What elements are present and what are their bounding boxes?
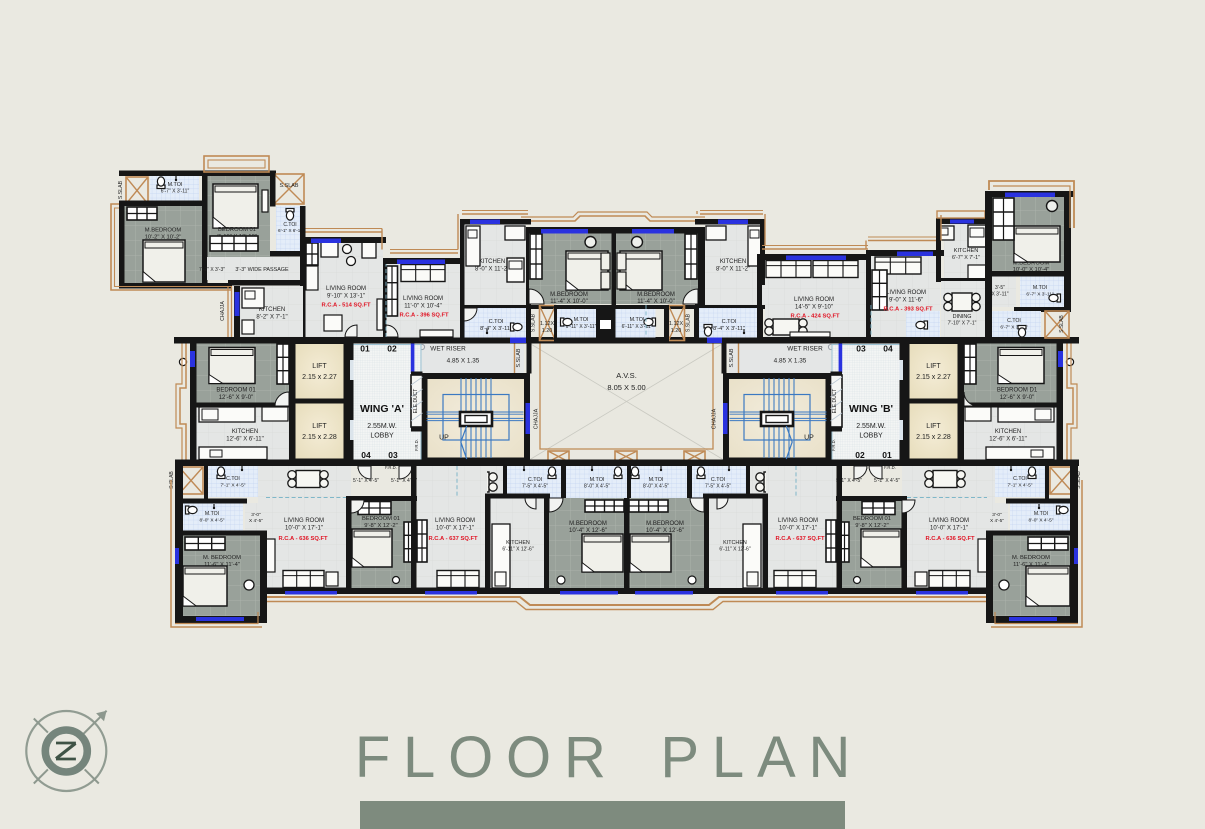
svg-text:8'-0" X 11'-2": 8'-0" X 11'-2"	[716, 267, 750, 273]
svg-text:6'-11" X 12'-6": 6'-11" X 12'-6"	[502, 547, 533, 553]
svg-text:LIFT: LIFT	[312, 423, 327, 430]
svg-text:01: 01	[360, 344, 370, 354]
svg-text:F.R.D.: F.R.D.	[414, 439, 419, 451]
svg-text:7'-5" X 4'-5": 7'-5" X 4'-5"	[522, 484, 548, 490]
svg-text:LIVING ROOM: LIVING ROOM	[778, 518, 818, 524]
svg-text:X 3'-11": X 3'-11"	[991, 292, 1008, 298]
svg-text:4.85 X 1.35: 4.85 X 1.35	[447, 358, 480, 365]
svg-text:A.V.S.: A.V.S.	[616, 371, 637, 380]
svg-text:LIVING ROOM: LIVING ROOM	[284, 518, 324, 524]
svg-text:KITCHEN: KITCHEN	[720, 259, 746, 265]
svg-text:11'-0" X 10'-4": 11'-0" X 10'-4"	[404, 304, 441, 310]
svg-text:8.05 X 5.00: 8.05 X 5.00	[607, 383, 645, 392]
svg-text:S.SLAB: S.SLAB	[531, 313, 537, 332]
svg-text:14'-5" X 9'-10": 14'-5" X 9'-10"	[795, 305, 833, 311]
svg-text:6'-11" X 12'-6": 6'-11" X 12'-6"	[719, 547, 750, 553]
svg-text:WET RISER: WET RISER	[787, 346, 823, 353]
svg-text:KITCHEN: KITCHEN	[232, 429, 258, 435]
svg-text:1.20: 1.20	[671, 328, 682, 334]
svg-text:10'-0" X 17'-1": 10'-0" X 17'-1"	[436, 526, 474, 532]
svg-text:8'-2" X 7'-1": 8'-2" X 7'-1"	[256, 315, 287, 321]
svg-text:BEDROOM D1: BEDROOM D1	[997, 388, 1038, 394]
svg-text:R.C.A - 393 SQ.FT: R.C.A - 393 SQ.FT	[883, 307, 933, 313]
svg-text:KITCHEN: KITCHEN	[954, 248, 979, 254]
svg-text:04: 04	[361, 450, 371, 460]
svg-text:1.12X: 1.12X	[669, 321, 683, 327]
svg-text:11'-4" X 10'-0": 11'-4" X 10'-0"	[550, 299, 587, 305]
svg-text:7'-1" X 4'-5": 7'-1" X 4'-5"	[1008, 483, 1033, 489]
svg-text:LIFT: LIFT	[312, 363, 327, 370]
svg-text:R.C.A - 637 SQ.FT: R.C.A - 637 SQ.FT	[775, 536, 825, 542]
svg-text:01: 01	[882, 450, 892, 460]
svg-text:S.SLAB: S.SLAB	[169, 471, 175, 489]
svg-text:9'-0" X 11'-6": 9'-0" X 11'-6"	[889, 298, 923, 304]
svg-text:02: 02	[855, 450, 865, 460]
svg-text:C.TOI: C.TOI	[722, 319, 737, 325]
svg-text:LIVING ROOM: LIVING ROOM	[403, 296, 443, 302]
svg-text:M.TOI: M.TOI	[1034, 511, 1048, 517]
svg-text:WING 'A': WING 'A'	[360, 403, 404, 415]
svg-text:04: 04	[883, 344, 893, 354]
svg-text:6'-7" X 7'-1": 6'-7" X 7'-1"	[952, 255, 980, 261]
svg-text:ELE.DUCT: ELE.DUCT	[413, 389, 419, 414]
svg-text:LOBBY: LOBBY	[859, 433, 883, 440]
svg-text:LIVING ROOM: LIVING ROOM	[794, 297, 834, 303]
svg-text:LOBBY: LOBBY	[370, 433, 394, 440]
svg-text:LIVING ROOM: LIVING ROOM	[929, 518, 969, 524]
svg-text:M.TOI: M.TOI	[574, 317, 589, 323]
svg-text:BEDROOM 01: BEDROOM 01	[218, 227, 256, 233]
svg-text:1.12X: 1.12X	[540, 321, 554, 327]
svg-text:12'-6" X 9'-0": 12'-6" X 9'-0"	[219, 395, 254, 401]
svg-text:8'-0" X 11'-2": 8'-0" X 11'-2"	[475, 267, 509, 273]
svg-text:8'-0" X 4'-5": 8'-0" X 4'-5"	[1029, 518, 1054, 524]
svg-text:M.BEDROOM: M.BEDROOM	[637, 292, 675, 298]
svg-text:M.TOI: M.TOI	[168, 182, 183, 188]
svg-text:X 4'-5": X 4'-5"	[990, 518, 1004, 524]
svg-text:3'-3" WIDE PASSAGE: 3'-3" WIDE PASSAGE	[235, 267, 289, 273]
svg-text:12'-6" X 6'-11": 12'-6" X 6'-11"	[226, 437, 263, 443]
svg-text:2.55M.W.: 2.55M.W.	[856, 423, 886, 430]
svg-text:FLOOR PLAN: FLOOR PLAN	[355, 725, 863, 790]
svg-text:ELE.DUCT: ELE.DUCT	[832, 389, 838, 414]
svg-text:R.C.A - 396 SQ.FT: R.C.A - 396 SQ.FT	[399, 313, 449, 319]
svg-text:KITCHEN: KITCHEN	[479, 259, 505, 265]
svg-text:R.C.A - 637 SQ.FT: R.C.A - 637 SQ.FT	[428, 536, 478, 542]
svg-text:M.TOI: M.TOI	[630, 317, 645, 323]
svg-text:10'-0" X 17'-1": 10'-0" X 17'-1"	[285, 526, 323, 532]
svg-text:9'-10" X 13'-1": 9'-10" X 13'-1"	[327, 294, 365, 300]
svg-text:M.TOI: M.TOI	[649, 477, 664, 483]
svg-text:WET RISER: WET RISER	[430, 346, 466, 353]
svg-text:7'-10" X 7'-1": 7'-10" X 7'-1"	[948, 321, 977, 327]
svg-text:BEDROOM 01: BEDROOM 01	[362, 516, 400, 522]
svg-text:S.SLAB: S.SLAB	[280, 183, 299, 189]
svg-text:M.BEDROOM: M.BEDROOM	[569, 521, 607, 527]
svg-text:2.15 x 2.28: 2.15 x 2.28	[302, 434, 337, 441]
svg-text:S.SLAB: S.SLAB	[1059, 315, 1065, 333]
svg-text:S.SLAB: S.SLAB	[516, 348, 522, 367]
svg-text:R.C.A - 636 SQ.FT: R.C.A - 636 SQ.FT	[278, 536, 328, 542]
svg-text:M. BEDROOM: M. BEDROOM	[203, 555, 241, 561]
svg-text:8'-0" X 4'-5": 8'-0" X 4'-5"	[200, 518, 225, 524]
svg-text:M. BEDROOM: M. BEDROOM	[1012, 555, 1050, 561]
svg-text:F.R.D.: F.R.D.	[831, 439, 836, 451]
svg-text:10'-0" X 17'-1": 10'-0" X 17'-1"	[779, 526, 817, 532]
svg-text:9'-8" X 12'-2": 9'-8" X 12'-2"	[364, 523, 397, 529]
svg-text:8'-4" X 3'-11": 8'-4" X 3'-11"	[713, 326, 745, 332]
svg-text:S.SLAB: S.SLAB	[118, 180, 124, 199]
svg-text:9'-8" X 12'-2": 9'-8" X 12'-2"	[855, 523, 888, 529]
svg-text:M.BEDROOM: M.BEDROOM	[145, 228, 182, 234]
svg-text:3'-0": 3'-0"	[992, 512, 1002, 518]
svg-text:03: 03	[856, 344, 866, 354]
svg-text:4.85 X 1.35: 4.85 X 1.35	[774, 358, 807, 365]
svg-text:03: 03	[388, 450, 398, 460]
svg-text:LIVING ROOM: LIVING ROOM	[435, 518, 475, 524]
svg-text:M.TOI: M.TOI	[1033, 285, 1047, 291]
svg-text:3'-5": 3'-5"	[995, 285, 1005, 291]
svg-text:C.TOI: C.TOI	[1007, 318, 1021, 324]
svg-text:3'-0": 3'-0"	[251, 512, 261, 518]
svg-text:12'-6" X 6'-11": 12'-6" X 6'-11"	[989, 437, 1026, 443]
svg-text:5'-1" X 4'-5": 5'-1" X 4'-5"	[353, 478, 379, 484]
svg-text:CHAJJA: CHAJJA	[534, 408, 540, 429]
svg-text:DINING: DINING	[953, 314, 972, 320]
svg-text:KITCHEN: KITCHEN	[995, 429, 1021, 435]
svg-text:CHAJJA: CHAJJA	[712, 408, 718, 429]
svg-text:6'-7" X 3'-11": 6'-7" X 3'-11"	[161, 189, 190, 195]
svg-text:2.15 x 2.27: 2.15 x 2.27	[302, 374, 337, 381]
svg-text:7'-2" X 3'-3": 7'-2" X 3'-3"	[199, 267, 225, 273]
svg-text:10'-4" X 12'-6": 10'-4" X 12'-6"	[569, 528, 607, 534]
svg-text:11'-4" X 10'-0": 11'-4" X 10'-0"	[637, 299, 674, 305]
svg-text:8'-0" X 4'-5": 8'-0" X 4'-5"	[643, 484, 669, 490]
svg-text:R.C.A - 514 SQ.FT: R.C.A - 514 SQ.FT	[321, 303, 371, 309]
svg-text:KITCHEN: KITCHEN	[506, 540, 530, 546]
svg-text:X 4'-5": X 4'-5"	[249, 518, 263, 524]
svg-text:S.SLAB: S.SLAB	[686, 313, 692, 332]
svg-text:C.TOI: C.TOI	[489, 319, 504, 325]
svg-text:UP: UP	[439, 435, 449, 442]
svg-text:CHAJJA: CHAJJA	[220, 301, 226, 321]
svg-text:C.TOI: C.TOI	[711, 477, 725, 483]
svg-text:02: 02	[387, 344, 397, 354]
svg-text:LIVING ROOM: LIVING ROOM	[886, 290, 926, 296]
svg-text:2.15 x 2.28: 2.15 x 2.28	[916, 434, 951, 441]
svg-text:UP: UP	[804, 435, 814, 442]
svg-text:10'-0" X 17'-1": 10'-0" X 17'-1"	[930, 526, 968, 532]
svg-text:7'-5" X 4'-5": 7'-5" X 4'-5"	[705, 484, 731, 490]
svg-text:C.TOI: C.TOI	[1013, 476, 1027, 482]
svg-text:C.TOI: C.TOI	[226, 476, 240, 482]
svg-text:WING 'B': WING 'B'	[849, 403, 893, 415]
svg-text:2.55M.W.: 2.55M.W.	[367, 423, 397, 430]
svg-text:6'-1" X 6'-1": 6'-1" X 6'-1"	[278, 228, 302, 233]
svg-text:10'-4" X 12'-6": 10'-4" X 12'-6"	[646, 528, 684, 534]
svg-text:8'-4" X 3'-11": 8'-4" X 3'-11"	[480, 326, 512, 332]
svg-text:C.TOI: C.TOI	[528, 477, 542, 483]
svg-text:M.TOI: M.TOI	[590, 477, 605, 483]
svg-text:12'-6" X 9'-0": 12'-6" X 9'-0"	[1000, 395, 1035, 401]
svg-text:M.BEDROOM: M.BEDROOM	[646, 521, 684, 527]
svg-text:KITCHEN: KITCHEN	[723, 540, 747, 546]
svg-text:S.SLAB: S.SLAB	[729, 348, 735, 367]
svg-text:R.C.A - 636 SQ.FT: R.C.A - 636 SQ.FT	[925, 536, 975, 542]
svg-text:BEDROOM 01: BEDROOM 01	[216, 388, 256, 394]
svg-text:7'-1" X 4'-5": 7'-1" X 4'-5"	[221, 483, 246, 489]
svg-text:BEDROOM 01: BEDROOM 01	[853, 516, 891, 522]
svg-text:LIVING ROOM: LIVING ROOM	[326, 286, 366, 292]
svg-text:LIFT: LIFT	[926, 423, 941, 430]
svg-text:8'-0" X 4'-5": 8'-0" X 4'-5"	[584, 484, 610, 490]
svg-text:LIFT: LIFT	[926, 363, 941, 370]
svg-text:1.20: 1.20	[542, 328, 553, 334]
svg-text:2.15 x 2.27: 2.15 x 2.27	[916, 374, 951, 381]
svg-text:M.BEDROOM: M.BEDROOM	[550, 292, 588, 298]
svg-text:M.TOI: M.TOI	[205, 511, 219, 517]
